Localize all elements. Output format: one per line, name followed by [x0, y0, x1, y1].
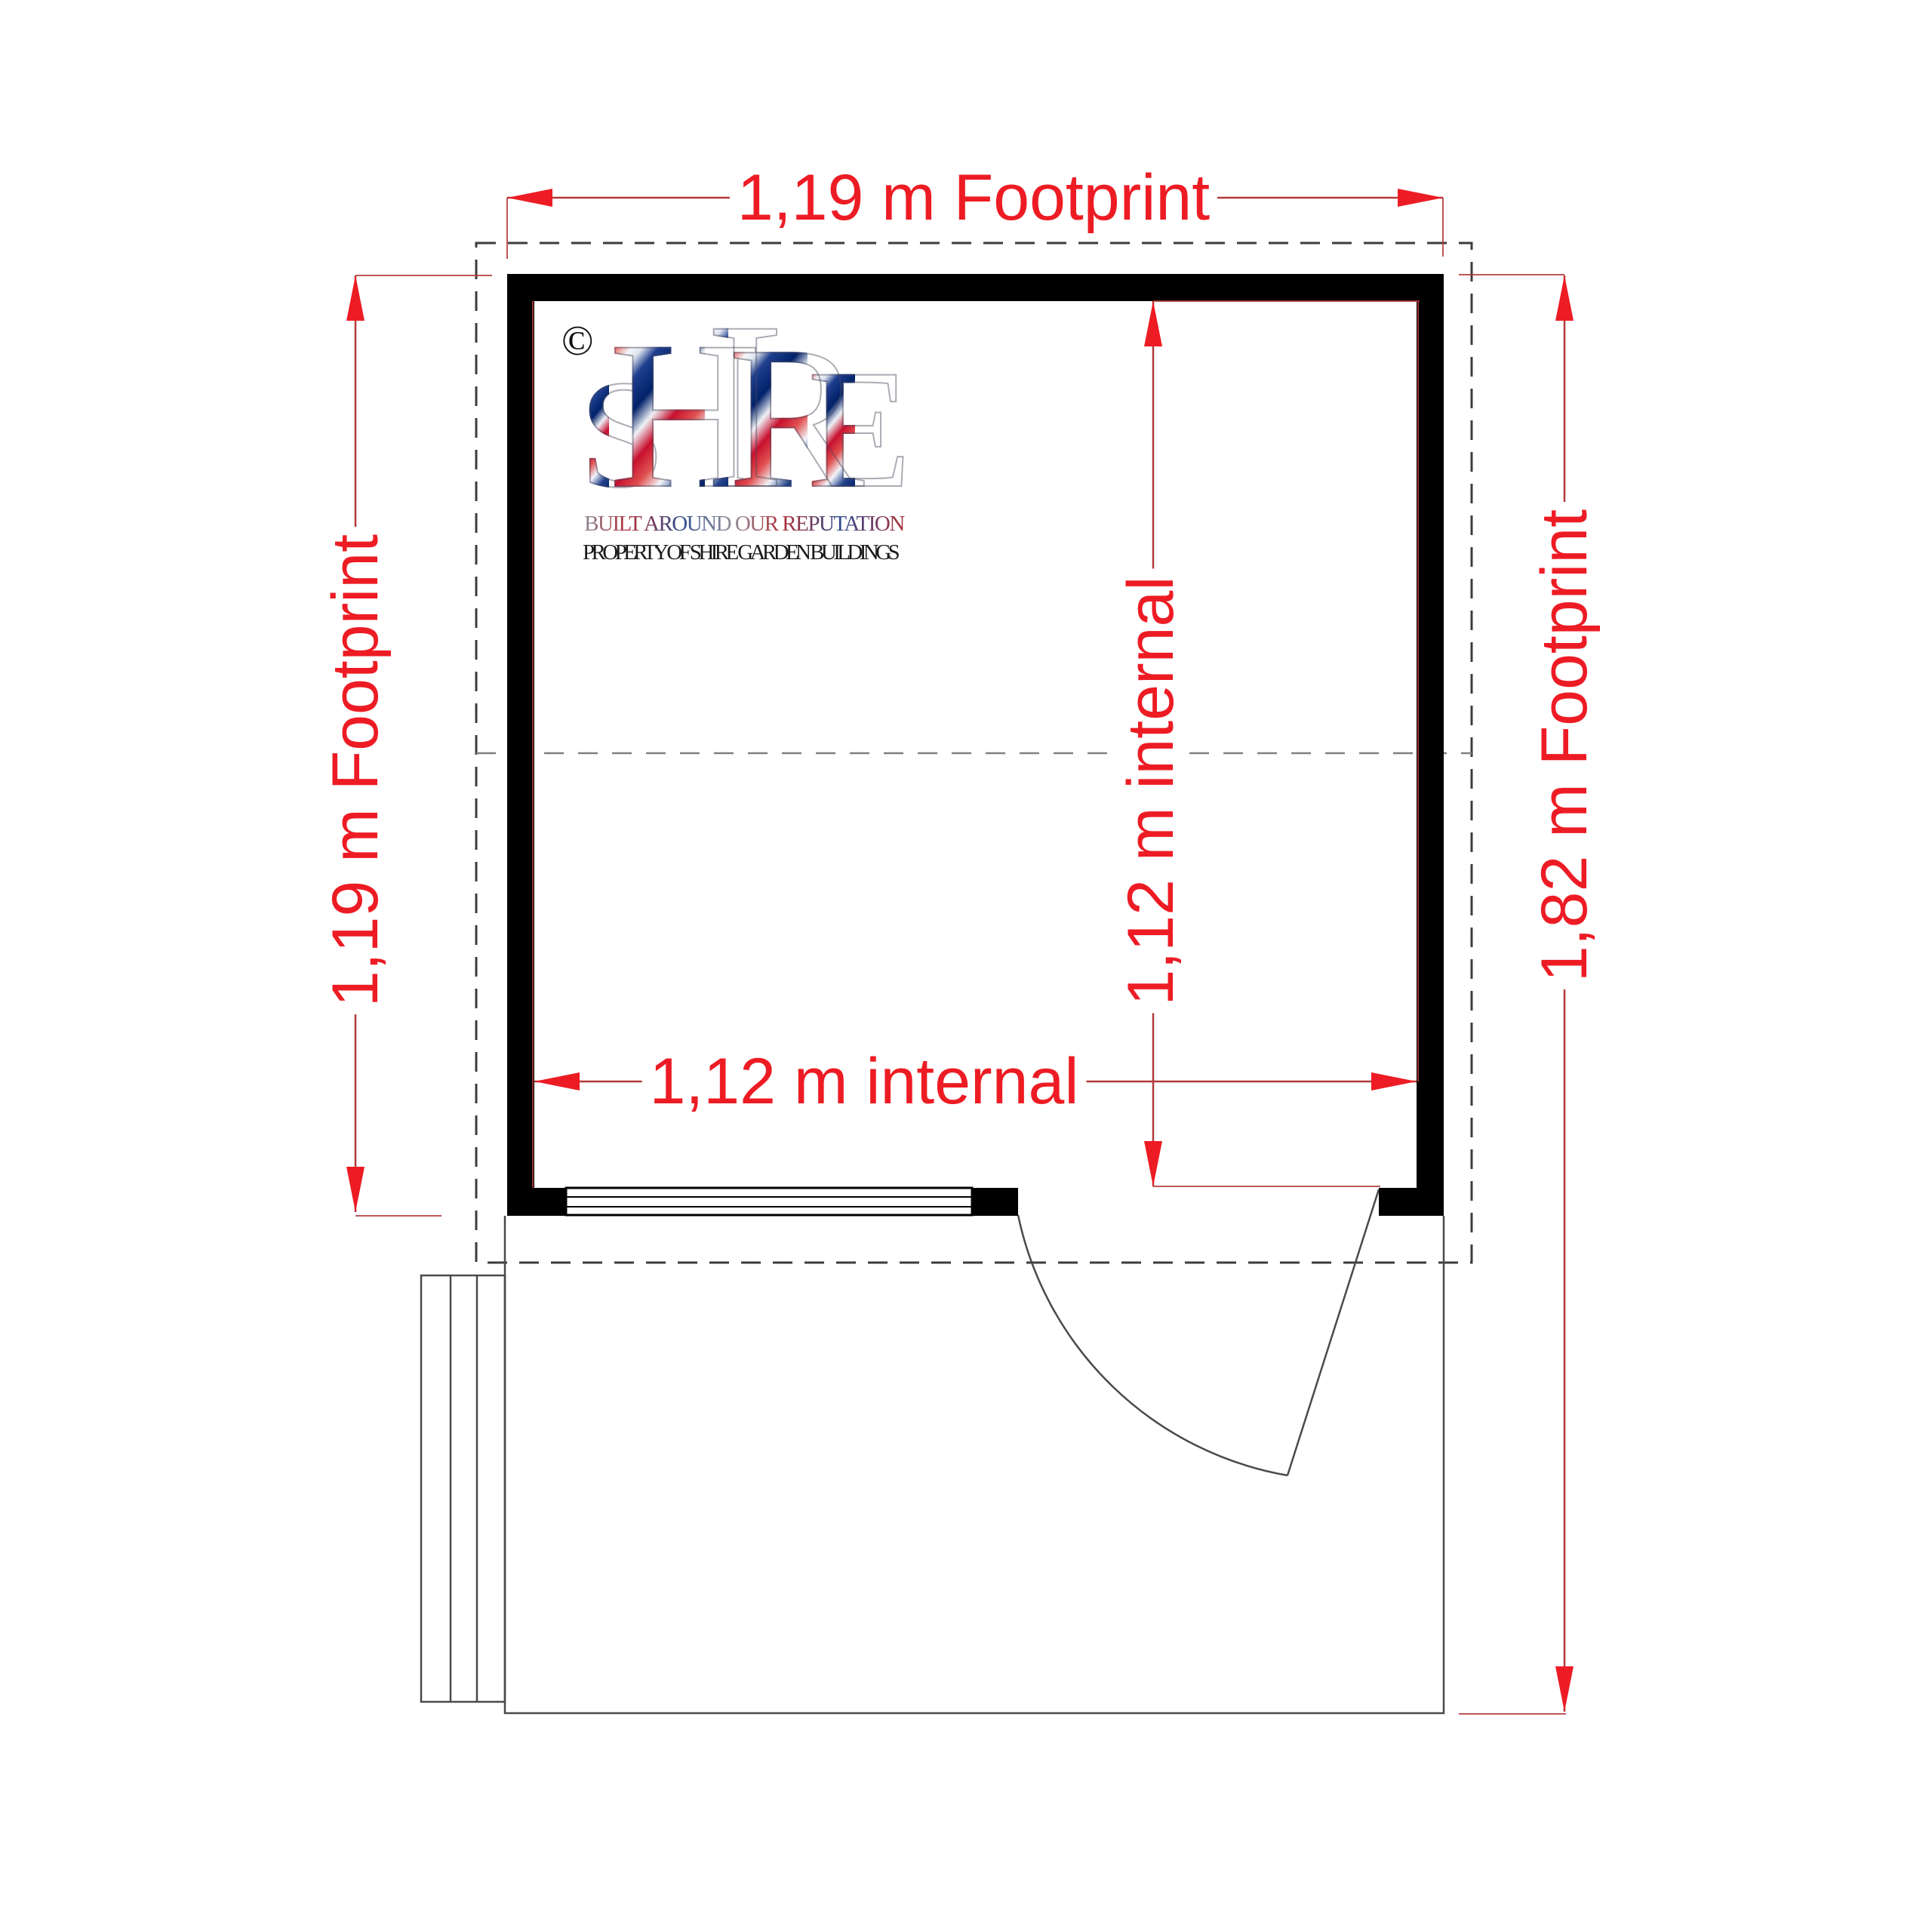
wall-bottom-right-corner: [1379, 1188, 1444, 1216]
steps-outline: [421, 1275, 505, 1702]
plan-linework: [0, 0, 1932, 1932]
arrowhead-right: [1371, 1072, 1417, 1091]
logo-letter: S: [580, 357, 609, 512]
wall-left: [507, 274, 534, 1216]
logo-letter: R: [728, 316, 808, 520]
arrowhead-down: [1555, 1666, 1574, 1712]
arrowhead-down: [1144, 1141, 1162, 1186]
dim-label-footprint-width: 1,19 m Footprint: [730, 164, 1217, 232]
arrowhead-right: [1398, 189, 1443, 207]
logo-wordmark: S H I R E: [580, 285, 912, 525]
floor-plan-canvas: 1,19 m Footprint 1,19 m Footprint 1,82 m…: [0, 0, 1932, 1932]
wall-bottom-stub: [972, 1188, 1018, 1216]
door-leaf-line: [1287, 1189, 1379, 1475]
dim-label-footprint-depth: 1,19 m Footprint: [321, 527, 389, 1014]
arrowhead-left: [534, 1072, 580, 1091]
arrowhead-down: [346, 1167, 365, 1212]
arrowhead-up: [346, 275, 365, 321]
door-swing-arc: [1018, 1215, 1287, 1475]
logo-letter: H: [609, 309, 705, 521]
logo-letter: E: [808, 344, 854, 514]
dim-label-internal-depth: 1,12 m internal: [1117, 569, 1185, 1014]
wall-right: [1417, 274, 1444, 1216]
wall-bottom-left-corner: [507, 1188, 566, 1216]
arrowhead-left: [507, 189, 552, 207]
arrowhead-up: [1555, 275, 1574, 321]
logo-letter: I: [705, 285, 728, 525]
logo-property-line: PROPERTY OF SHIRE GARDEN BUILDINGS: [565, 542, 915, 564]
porch-deck-outline: [505, 1216, 1444, 1713]
dim-label-footprint-total-depth: 1,82 m Footprint: [1531, 502, 1598, 989]
arrowhead-up: [1144, 301, 1162, 346]
dim-label-internal-width: 1,12 m internal: [642, 1048, 1087, 1115]
window: [566, 1188, 972, 1215]
